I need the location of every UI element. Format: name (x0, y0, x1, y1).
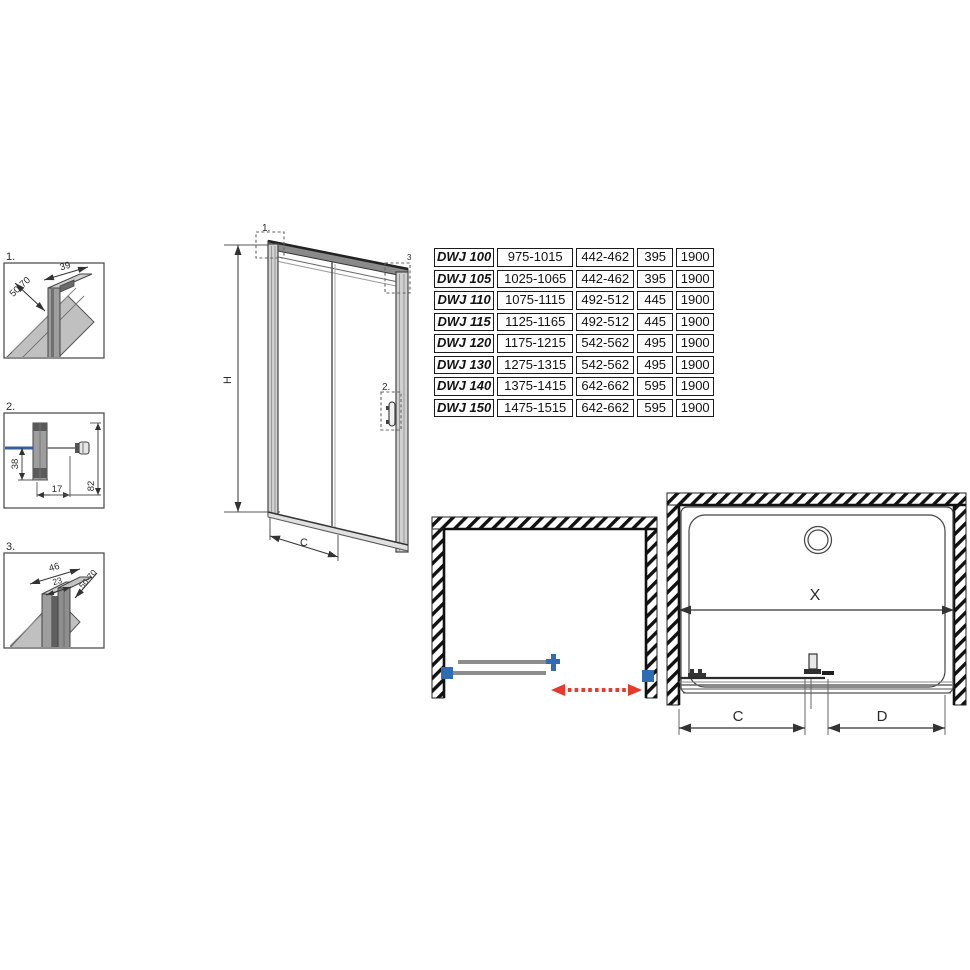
range-a-cell: 1075-1115 (497, 291, 573, 310)
table-row: DWJ 110 1075-1115 492-512 445 1900 (434, 291, 714, 310)
entry-cell: 495 (637, 356, 673, 375)
entry-cell: 445 (637, 313, 673, 332)
range-a-cell: 1275-1315 (497, 356, 573, 375)
height-cell: 1900 (676, 313, 714, 332)
entry-cell: 395 (637, 248, 673, 267)
wall-bracket (75, 443, 79, 453)
dimension-d: D (828, 708, 945, 733)
range-b-cell: 542-562 (576, 334, 634, 353)
range-b-cell: 542-562 (576, 356, 634, 375)
model-cell: DWJ 150 (434, 399, 494, 418)
table-row: DWJ 140 1375-1415 642-662 595 1900 (434, 377, 714, 396)
handle-knob (546, 654, 560, 671)
door-handle (386, 402, 395, 426)
hatched-walls (432, 517, 657, 698)
height-cell: 1900 (676, 399, 714, 418)
plan-view-sliding (425, 505, 665, 710)
dim-label-height: H (222, 376, 234, 384)
model-cell: DWJ 115 (434, 313, 494, 332)
detail-2-wall-profile: 2. 38 (2, 398, 114, 514)
entry-cell: 445 (637, 291, 673, 310)
sliding-panel (446, 671, 546, 675)
detail-3-label: 3. (6, 541, 15, 553)
range-b-cell: 442-462 (576, 270, 634, 289)
dim-label-x: X (810, 587, 821, 604)
dim-label-c: C (733, 708, 744, 725)
range-a-cell: 1175-1215 (497, 334, 573, 353)
height-cell: 1900 (676, 291, 714, 310)
spec-table: DWJ 100 975-1015 442-462 395 1900 DWJ 10… (431, 245, 717, 420)
range-b-cell: 642-662 (576, 399, 634, 418)
marker-label-1: 1. (262, 223, 270, 234)
range-a-cell: 1025-1065 (497, 270, 573, 289)
detail-2-dim-glass-offset: 38 (10, 459, 21, 470)
fixed-panel (458, 660, 560, 664)
height-cell: 1900 (676, 377, 714, 396)
height-cell: 1900 (676, 270, 714, 289)
wall-fitting-left (441, 667, 453, 679)
model-cell: DWJ 110 (434, 291, 494, 310)
table-row: DWJ 130 1275-1315 542-562 495 1900 (434, 356, 714, 375)
front-elevation-view: H 1. (218, 220, 418, 568)
right-profile (396, 272, 408, 552)
wall-top (432, 517, 657, 529)
table-row: DWJ 120 1175-1215 542-562 495 1900 (434, 334, 714, 353)
range-b-cell: 492-512 (576, 291, 634, 310)
marker-label-3: 3 (407, 253, 412, 262)
detail-1-label: 1. (6, 251, 15, 263)
door-frame (268, 241, 408, 552)
wall-left (667, 505, 679, 705)
handle-knob (809, 654, 817, 669)
height-cell: 1900 (676, 334, 714, 353)
range-a-cell: 1375-1415 (497, 377, 573, 396)
model-cell: DWJ 120 (434, 334, 494, 353)
entry-cell: 595 (637, 377, 673, 396)
dim-label-d: D (877, 708, 888, 725)
technical-drawing-sheet: 1. 39 50-70 2. (0, 0, 970, 970)
dim-label-c-front: C (300, 537, 308, 549)
range-b-cell: 442-462 (576, 248, 634, 267)
detail-2-dim-total: 82 (86, 481, 97, 492)
entry-cell: 395 (637, 270, 673, 289)
model-cell: DWJ 130 (434, 356, 494, 375)
model-cell: DWJ 100 (434, 248, 494, 267)
marker-label-2: 2. (382, 382, 390, 393)
left-profile (268, 244, 278, 514)
table-row: DWJ 100 975-1015 442-462 395 1900 (434, 248, 714, 267)
dimension-c: C (679, 708, 805, 733)
wall-top (667, 493, 966, 505)
slide-direction-arrow (551, 684, 642, 696)
detail-2-label: 2. (6, 401, 15, 413)
height-cell: 1900 (676, 248, 714, 267)
wall-right (954, 505, 966, 705)
model-cell: DWJ 140 (434, 377, 494, 396)
range-b-cell: 492-512 (576, 313, 634, 332)
table-row: DWJ 105 1025-1065 442-462 395 1900 (434, 270, 714, 289)
wall-fitting-right (642, 670, 654, 682)
entry-cell: 495 (637, 334, 673, 353)
range-a-cell: 1475-1515 (497, 399, 573, 418)
range-b-cell: 642-662 (576, 377, 634, 396)
entry-cell: 595 (637, 399, 673, 418)
detail-1-corner-profile: 1. 39 50-70 (2, 248, 114, 364)
model-cell: DWJ 105 (434, 270, 494, 289)
range-a-cell: 1125-1165 (497, 313, 573, 332)
height-cell: 1900 (676, 356, 714, 375)
table-row: DWJ 115 1125-1165 492-512 445 1900 (434, 313, 714, 332)
bracket-cap (79, 442, 89, 454)
detail-3-corner-profile: 3. 46 23 50-70 (2, 538, 114, 654)
range-a-cell: 975-1015 (497, 248, 573, 267)
detail-2-dim-profile: 17 (52, 484, 63, 495)
sliding-door-panels (441, 654, 654, 682)
table-row: DWJ 150 1475-1515 642-662 595 1900 (434, 399, 714, 418)
plan-view-dimensions: X (660, 483, 970, 745)
